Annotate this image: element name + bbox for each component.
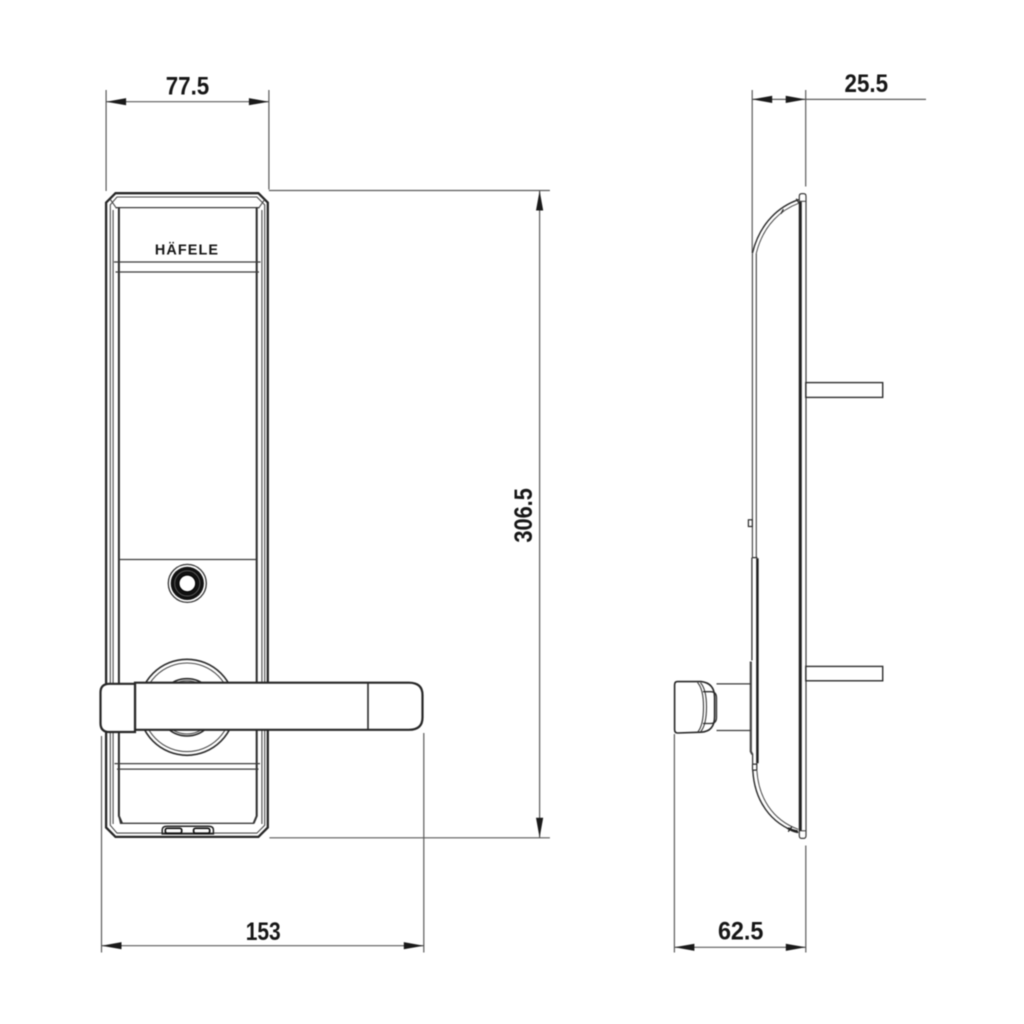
- svg-text:62.5: 62.5: [718, 918, 764, 946]
- svg-text:HÄFELE: HÄFELE: [155, 242, 219, 259]
- svg-text:77.5: 77.5: [166, 73, 210, 101]
- svg-text:25.5: 25.5: [845, 70, 889, 98]
- svg-text:306.5: 306.5: [510, 488, 538, 543]
- svg-text:153: 153: [246, 918, 281, 946]
